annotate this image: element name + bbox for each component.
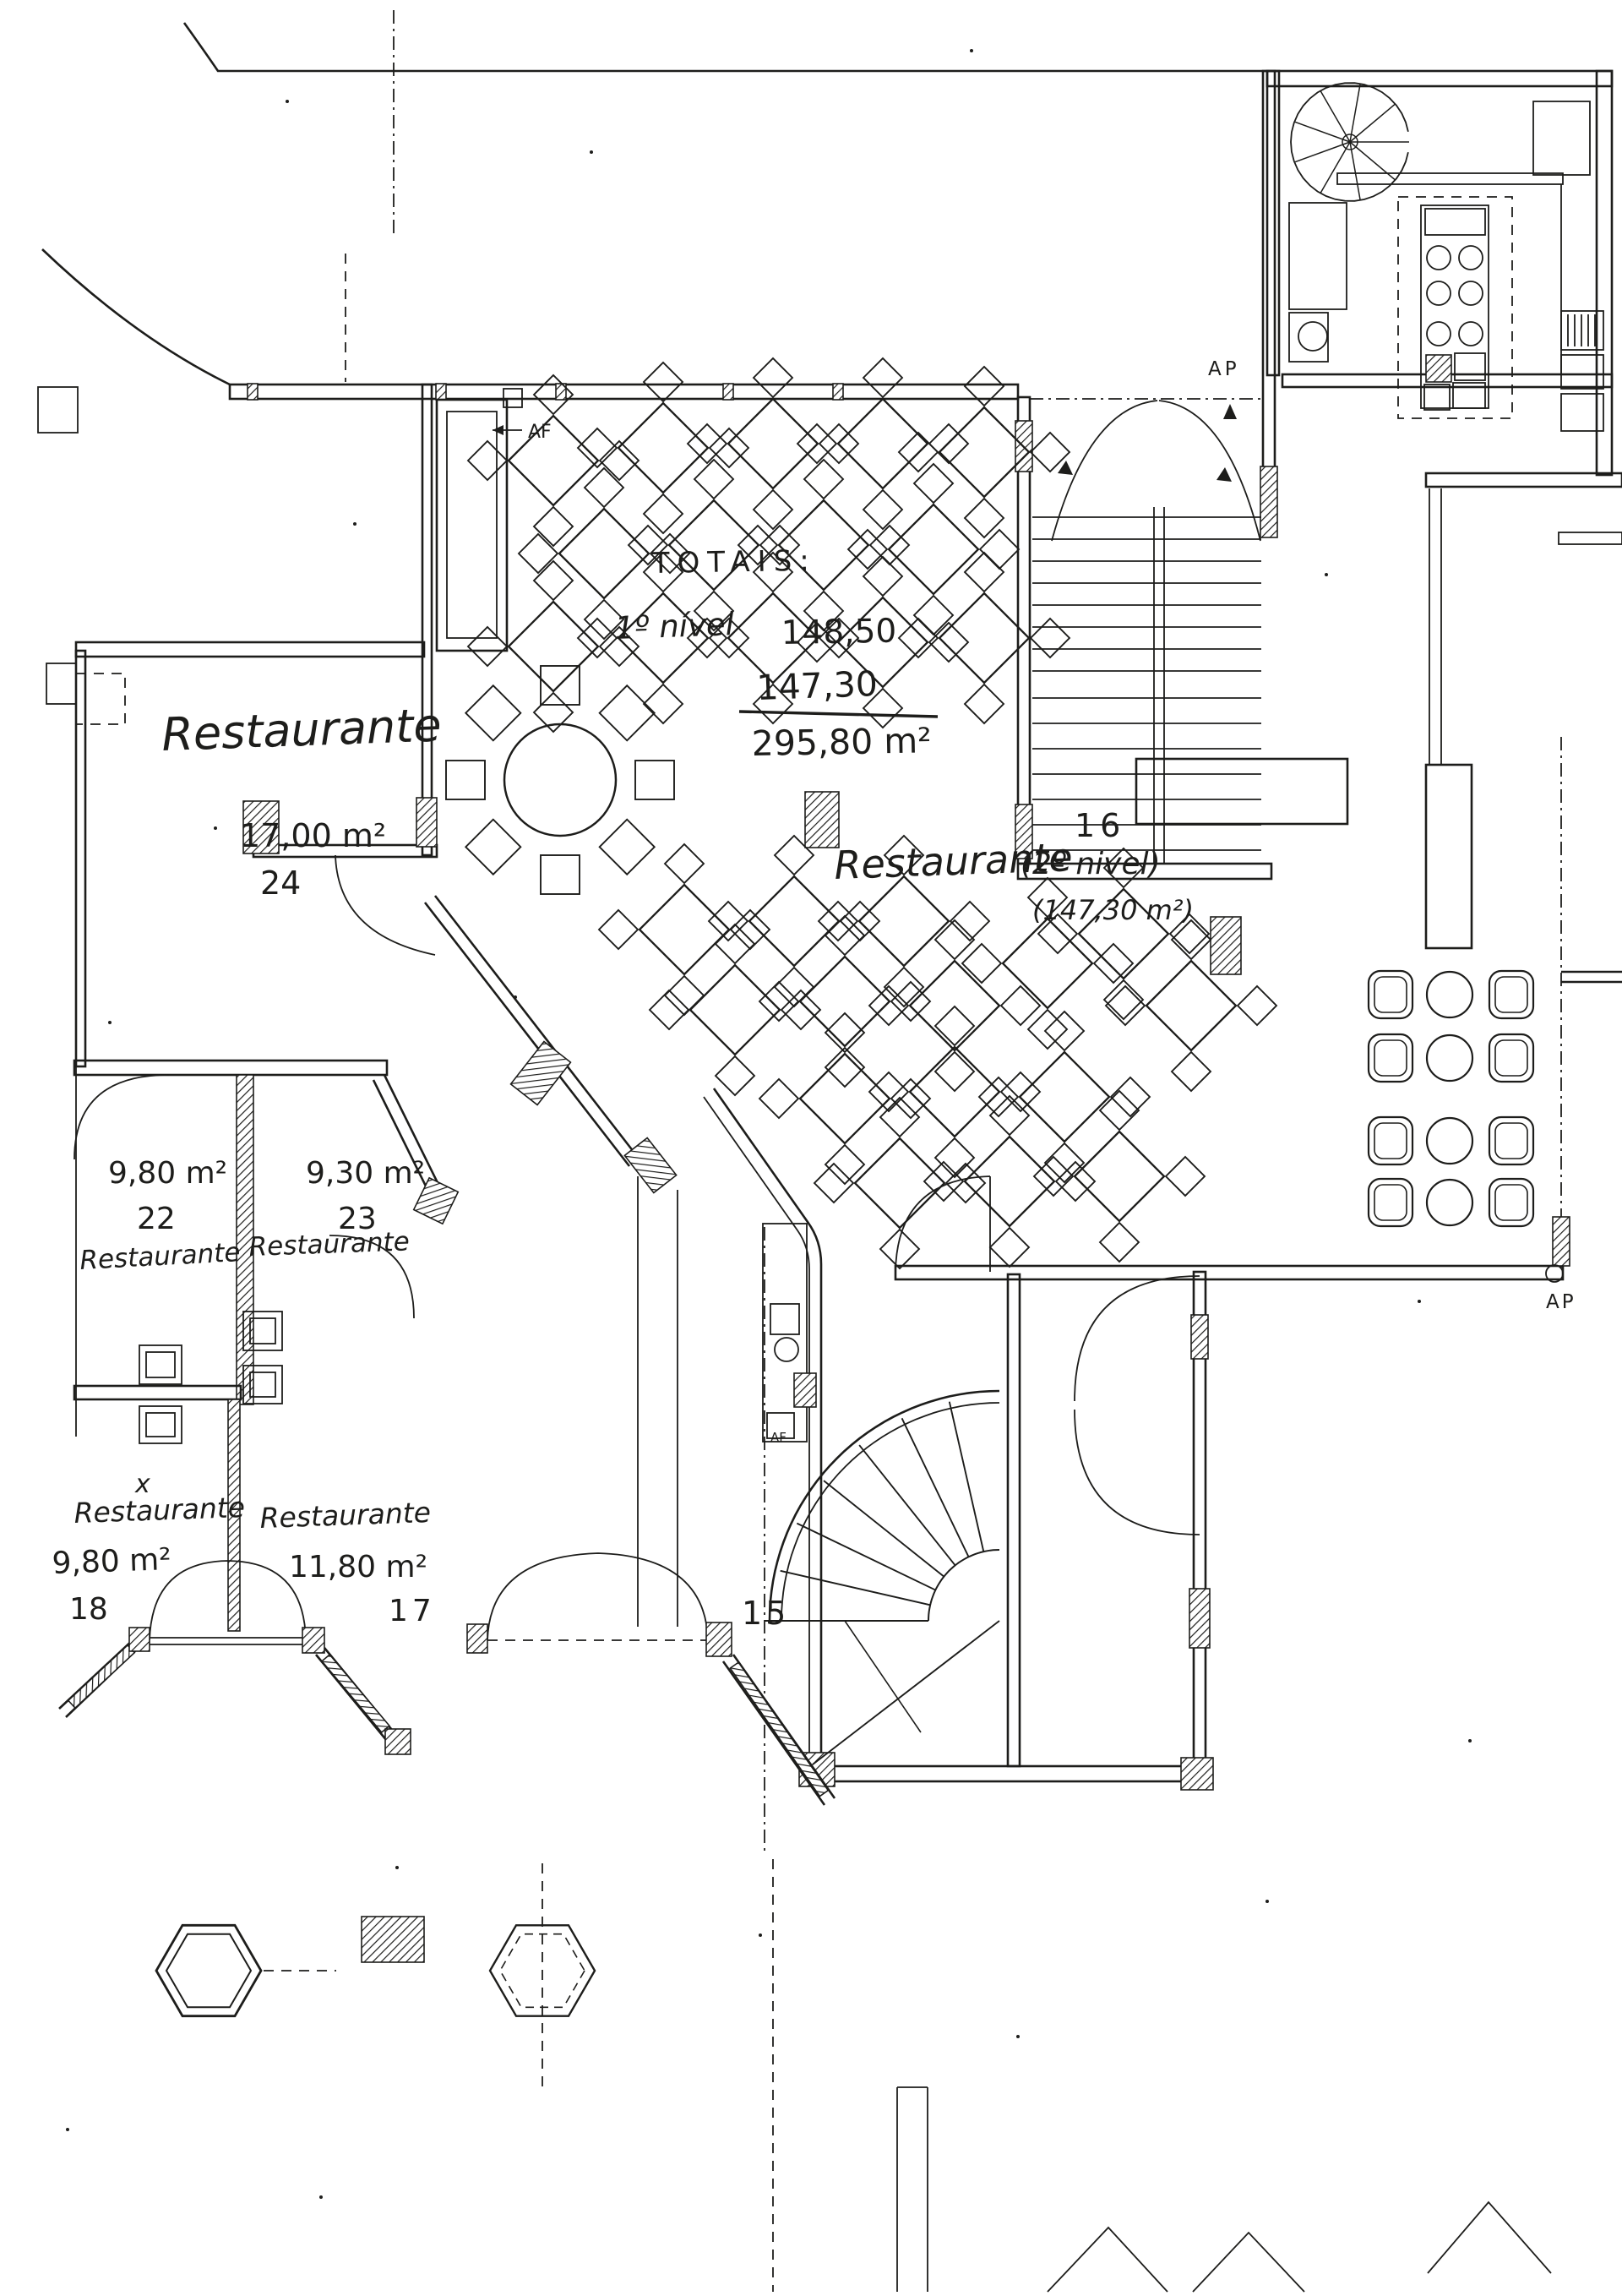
lounge-seat-inner <box>1495 1185 1527 1220</box>
dining-table <box>690 965 780 1055</box>
bottom-hexagons <box>156 1863 595 2087</box>
lounge-table <box>1427 972 1472 1017</box>
kitchen-spiral-tread <box>1320 90 1350 142</box>
totals-level2-value: 147,30 <box>756 663 879 708</box>
dining-table <box>965 1137 1054 1226</box>
chair <box>979 1077 1018 1116</box>
chair <box>781 990 820 1029</box>
chair <box>825 916 864 955</box>
dining-table <box>559 509 649 598</box>
stool <box>1459 322 1483 346</box>
room-22-name: Restaurante <box>79 1237 242 1276</box>
dining-table <box>855 1138 944 1228</box>
chair <box>534 561 573 600</box>
round-table <box>504 724 616 836</box>
chair <box>465 820 520 875</box>
lounge-table <box>1427 1118 1472 1164</box>
chair <box>1094 944 1133 983</box>
stool <box>1427 322 1451 346</box>
room-16-area: (147,30 m²) <box>1032 894 1194 926</box>
spiral-outer-inner <box>781 1403 999 1621</box>
chair <box>962 944 1001 983</box>
chair <box>599 910 638 949</box>
chair <box>804 460 843 499</box>
chair <box>635 761 674 799</box>
chair <box>775 968 814 1006</box>
chair <box>534 375 573 414</box>
dining-table <box>1003 919 1092 1008</box>
chair <box>1100 1091 1139 1130</box>
chair <box>665 844 704 883</box>
lounge-seat-inner <box>1495 1040 1527 1076</box>
chair <box>965 684 1004 723</box>
speck <box>1418 1300 1421 1303</box>
dining-table <box>859 876 949 966</box>
room-17-name: Restaurante <box>259 1496 432 1535</box>
room-17-number: 17 <box>389 1594 436 1628</box>
chair <box>644 363 683 401</box>
kitchen-spiral-tread <box>1320 142 1350 194</box>
kitchen-spiral-tread <box>1350 142 1360 200</box>
spiral-staircase-15 <box>765 1391 999 1764</box>
speck <box>1325 573 1328 576</box>
room-23-area: 9,30 m² <box>306 1156 425 1191</box>
lounge-seat-inner <box>1374 1185 1407 1220</box>
floor-plan-page: TOTAIS: 1º nível 148,50 147,30 295,80 m²… <box>0 0 1622 2296</box>
room-16-number: 16 <box>1075 807 1125 844</box>
stool <box>1459 281 1483 305</box>
main-staircase <box>1032 461 1261 864</box>
spiral-tread <box>813 1621 999 1764</box>
chair <box>990 1096 1029 1135</box>
room-24-area: 17,00 m² <box>240 817 386 854</box>
dining-table <box>1075 1132 1164 1221</box>
chair <box>759 1079 798 1118</box>
chair <box>578 619 617 657</box>
speck <box>66 2128 69 2131</box>
chair <box>716 924 754 963</box>
chair <box>990 1228 1029 1267</box>
chair <box>935 1052 974 1091</box>
chair <box>880 1098 919 1137</box>
chair <box>688 424 727 463</box>
chair <box>935 1138 974 1177</box>
chair <box>935 1006 974 1045</box>
hex-planter <box>156 1925 261 2015</box>
totals-total-value: 295,80 m² <box>751 720 932 764</box>
chair <box>731 910 770 949</box>
chair <box>848 530 887 569</box>
chair <box>754 358 792 397</box>
speck <box>1468 1739 1472 1742</box>
furniture-layer <box>446 358 1533 1268</box>
af-dining-arrowhead <box>493 425 503 435</box>
chair <box>1172 1052 1211 1091</box>
af-dining-label: AF <box>528 422 552 443</box>
kitchen-spiral-stair <box>1291 83 1409 201</box>
dining-table <box>749 876 839 966</box>
room-23-name: Restaurante <box>248 1226 410 1263</box>
spiral-tread <box>845 1621 921 1732</box>
speck <box>590 150 593 154</box>
room-22-area: 9,80 m² <box>108 1156 227 1191</box>
stool <box>1459 246 1483 270</box>
room-17-area: 11,80 m² <box>289 1550 427 1584</box>
chair <box>870 526 909 564</box>
chair <box>754 490 792 529</box>
chair <box>891 982 930 1021</box>
spiral-outer <box>770 1391 999 1621</box>
lounge-table <box>1427 1035 1472 1081</box>
af-top-marker <box>1223 404 1237 419</box>
lounge-seat-inner <box>1495 977 1527 1012</box>
stool <box>1427 281 1451 305</box>
dining-table <box>509 416 598 505</box>
kitchen-spiral-tread <box>1294 142 1350 162</box>
speck <box>1265 1900 1269 1903</box>
lounge-seat-inner <box>1495 1123 1527 1159</box>
speck <box>1016 2035 1020 2038</box>
chair <box>716 1056 754 1095</box>
lounge-table <box>1427 1180 1472 1225</box>
chair <box>534 507 573 546</box>
chair <box>1001 1072 1040 1111</box>
dining-table <box>1020 1052 1109 1142</box>
room-22-number: 22 <box>137 1202 176 1236</box>
room-18-name: Restaurante <box>73 1491 246 1530</box>
chair <box>468 627 507 666</box>
site-boundary <box>42 10 1551 2292</box>
dining-table <box>939 593 1029 683</box>
speck <box>353 522 357 526</box>
lounge-seat-inner <box>1374 977 1407 1012</box>
chair <box>914 596 953 635</box>
totals-level1-label: 1º nível <box>614 606 736 646</box>
chair <box>863 557 902 596</box>
chair <box>1100 1223 1139 1262</box>
dining-table <box>800 957 890 1046</box>
scan-speckles <box>66 49 1472 2199</box>
kitchen-spiral-tread <box>1294 122 1350 142</box>
chair <box>863 358 902 397</box>
kitchen-stools <box>1427 246 1483 346</box>
floor-plan-drawing: TOTAIS: 1º nível 148,50 147,30 295,80 m²… <box>0 0 1622 2296</box>
speck <box>214 826 217 830</box>
lounge-seat-inner <box>1374 1040 1407 1076</box>
chair <box>709 902 748 941</box>
speck <box>395 1866 399 1869</box>
ap-top-label: AP <box>1208 358 1240 380</box>
lounge-seat-inner <box>1374 1123 1407 1159</box>
chair <box>541 855 580 894</box>
speck <box>319 2195 323 2199</box>
kitchen-spiral-tread <box>1350 142 1396 180</box>
speck <box>514 995 517 999</box>
totals-sum-line <box>739 712 938 717</box>
dining-table <box>838 399 928 488</box>
chair <box>446 761 485 799</box>
chair <box>880 1230 919 1268</box>
chair <box>1166 1157 1205 1196</box>
kitchen <box>1267 71 1612 475</box>
chair <box>585 468 623 507</box>
room-18-number: 18 <box>69 1592 108 1627</box>
hex-planter-inner <box>166 1934 251 2008</box>
storefront-walls <box>59 1622 835 1805</box>
speck <box>970 49 973 52</box>
chair <box>965 553 1004 592</box>
chair <box>1034 1157 1073 1196</box>
chair <box>600 820 655 875</box>
kitchen-spiral-tread <box>1350 104 1396 142</box>
chair <box>891 1079 930 1118</box>
chair <box>534 693 573 732</box>
chair <box>465 685 520 740</box>
af-counter-label: AF <box>770 1430 787 1445</box>
chair <box>1045 1143 1084 1182</box>
walls <box>38 71 1622 1855</box>
kitchen-spiral-tread <box>1350 84 1360 142</box>
chair <box>600 685 655 740</box>
chair <box>1238 986 1276 1025</box>
room-24-number: 24 <box>260 864 301 902</box>
dining-table <box>728 399 818 488</box>
chair <box>759 982 798 1021</box>
speck <box>759 1933 762 1937</box>
chair <box>825 1145 864 1184</box>
room-18-area: 9,80 m² <box>52 1542 171 1581</box>
chair <box>665 976 704 1015</box>
speck <box>286 100 289 103</box>
stair-15-number: 15 <box>742 1595 789 1632</box>
totals-heading: TOTAIS: <box>650 544 817 581</box>
chair <box>1111 1077 1150 1116</box>
chair <box>519 534 558 573</box>
chair <box>468 441 507 480</box>
spiral-core <box>928 1550 999 1621</box>
chair <box>863 490 902 529</box>
labels: TOTAIS: 1º nível 148,50 147,30 295,80 m²… <box>52 358 1576 1632</box>
room-24-name: Restaurante <box>161 698 442 761</box>
speck <box>108 1021 112 1024</box>
dining-table <box>509 602 598 691</box>
ap-right-label: AP <box>1546 1291 1576 1313</box>
chair <box>814 1164 853 1203</box>
room-16-level: (2º nivel) <box>1021 847 1161 881</box>
dining-table <box>640 885 729 974</box>
chair <box>650 990 689 1029</box>
totals-level1-value: 148,50 <box>781 613 896 652</box>
chair <box>1031 619 1070 657</box>
chair <box>1001 986 1040 1025</box>
stool <box>1427 246 1451 270</box>
chair <box>1056 1162 1095 1201</box>
chair <box>869 1072 908 1111</box>
